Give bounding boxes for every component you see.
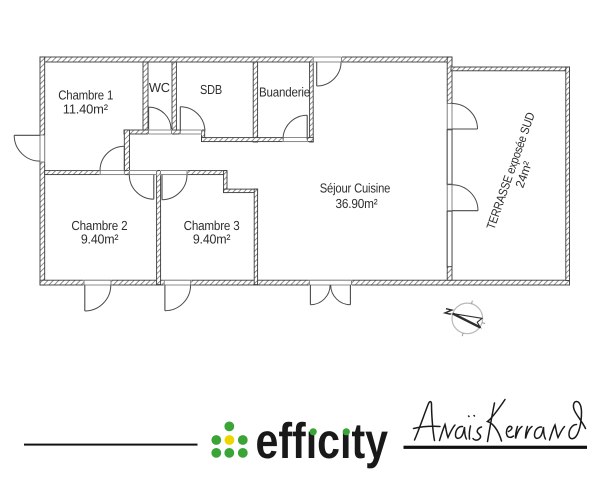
svg-text:WC: WC (149, 80, 170, 95)
svg-text:9.40m²: 9.40m² (81, 232, 119, 247)
svg-text:Séjour Cuisine: Séjour Cuisine (320, 180, 391, 195)
svg-text:36.90m²: 36.90m² (336, 196, 379, 211)
svg-text:Chambre 1: Chambre 1 (58, 87, 113, 102)
svg-text:SDB: SDB (200, 82, 222, 97)
svg-text:9.40m²: 9.40m² (193, 232, 231, 247)
svg-text:effıcıty: effıcıty (256, 413, 389, 469)
svg-text:11.40m²: 11.40m² (63, 101, 109, 116)
svg-text:Buanderie: Buanderie (259, 85, 310, 100)
